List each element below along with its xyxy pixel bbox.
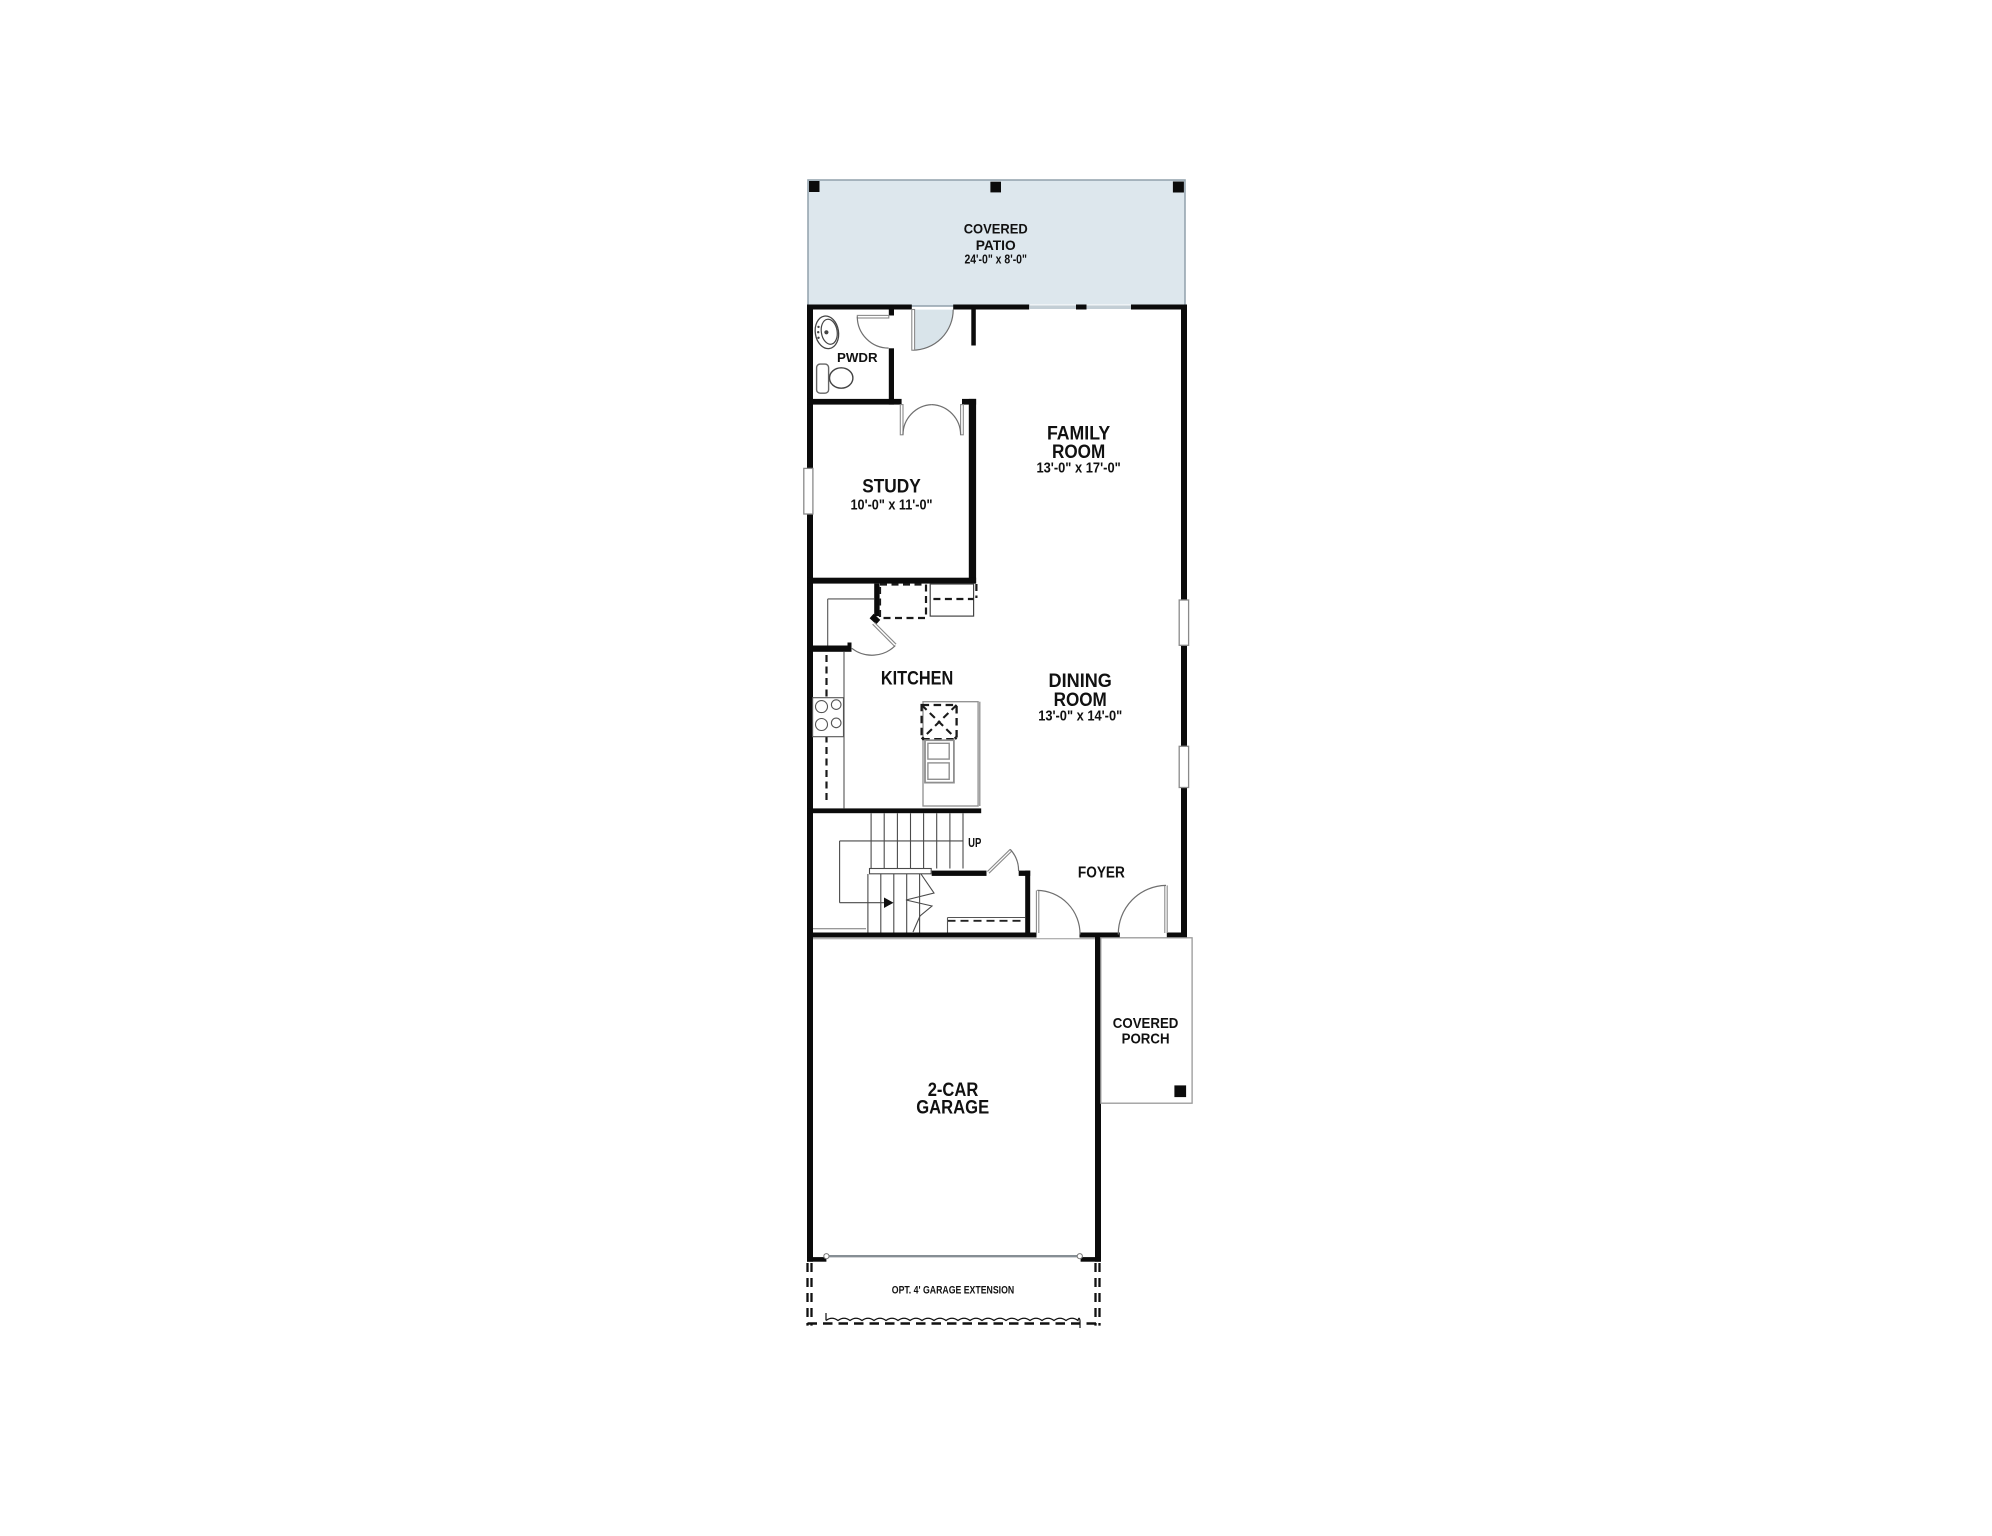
svg-text:GARAGE: GARAGE [916, 1098, 989, 1119]
svg-text:PWDR: PWDR [837, 350, 878, 365]
svg-text:10'-0" x 11'-0": 10'-0" x 11'-0" [851, 497, 933, 514]
svg-text:STUDY: STUDY [862, 476, 921, 498]
svg-text:COVERED: COVERED [1113, 1015, 1179, 1032]
svg-text:UP: UP [968, 836, 981, 850]
svg-text:FOYER: FOYER [1078, 865, 1125, 882]
svg-text:13'-0" x 17'-0": 13'-0" x 17'-0" [1036, 459, 1120, 476]
svg-text:PORCH: PORCH [1122, 1031, 1170, 1048]
svg-text:OPT. 4' GARAGE EXTENSION: OPT. 4' GARAGE EXTENSION [892, 1285, 1014, 1297]
svg-text:COVERED: COVERED [964, 221, 1028, 237]
svg-text:13'-0" x 14'-0": 13'-0" x 14'-0" [1038, 708, 1122, 725]
svg-text:24'-0" x 8'-0": 24'-0" x 8'-0" [964, 252, 1027, 267]
svg-text:KITCHEN: KITCHEN [881, 668, 953, 690]
